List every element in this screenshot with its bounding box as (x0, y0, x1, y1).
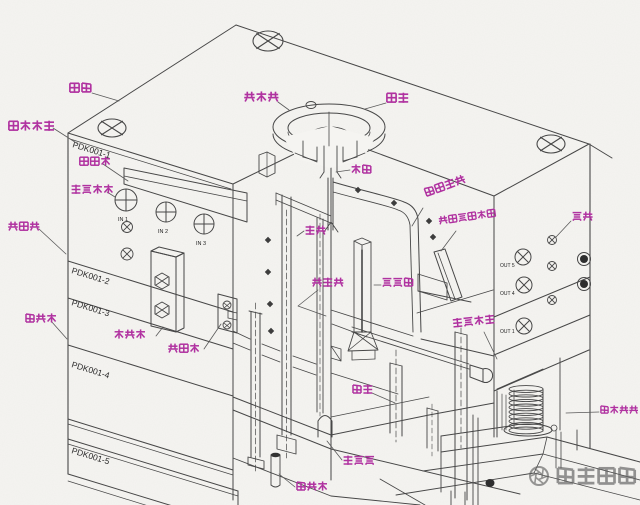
svg-text:IN 2: IN 2 (158, 229, 168, 235)
svg-text:IN 1: IN 1 (118, 217, 128, 223)
svg-text:OUT 1: OUT 1 (500, 329, 515, 335)
svg-text:OUT 4: OUT 4 (500, 291, 515, 297)
svg-text:OUT 5: OUT 5 (500, 263, 515, 269)
svg-text:IN 3: IN 3 (196, 241, 206, 247)
